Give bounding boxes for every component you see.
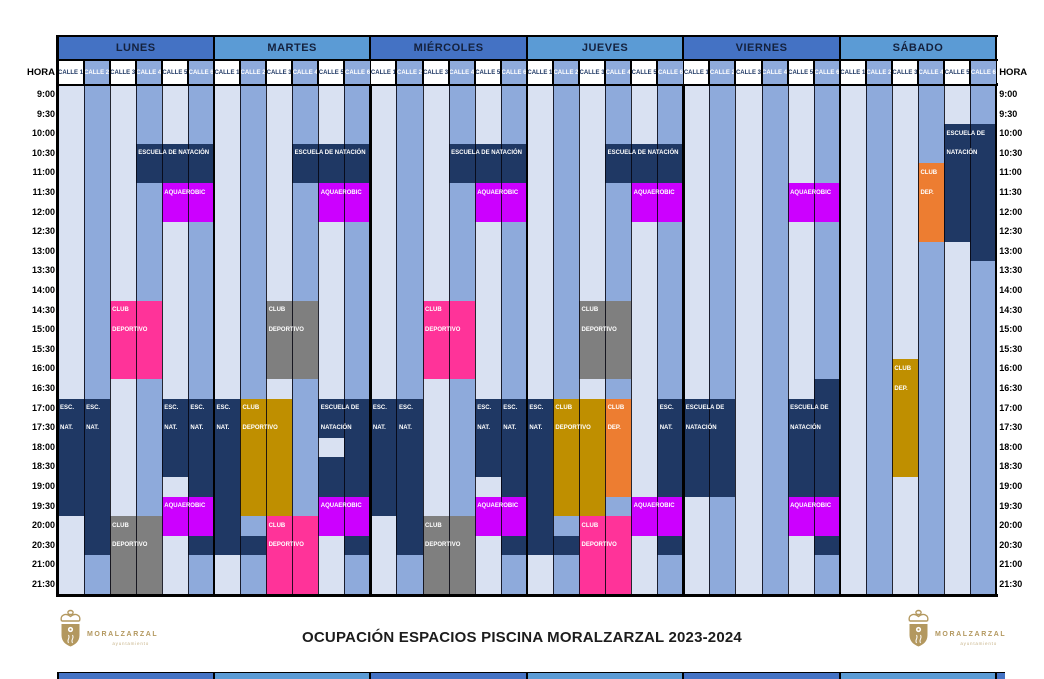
lane-header: CALLE 3 bbox=[579, 60, 605, 85]
lane-divider bbox=[136, 85, 137, 595]
time-label: 15:30 bbox=[26, 340, 55, 360]
time-label: 12:00 bbox=[999, 203, 1033, 223]
time-label: 14:30 bbox=[26, 301, 55, 321]
logo-name: MORALZARZAL bbox=[935, 631, 1006, 638]
time-label: 17:00 bbox=[26, 399, 55, 419]
lane-divider bbox=[657, 85, 658, 595]
lane-divider bbox=[162, 85, 163, 595]
lane-divider bbox=[735, 85, 736, 595]
time-label: 20:30 bbox=[26, 536, 55, 556]
time-label: 18:00 bbox=[999, 438, 1033, 458]
schedule-block-label: ESC. bbox=[164, 404, 178, 412]
schedule-block-label: ESC. bbox=[399, 404, 413, 412]
time-label: 9:00 bbox=[999, 85, 1033, 105]
lane-header: CALLE 1 bbox=[370, 60, 396, 85]
schedule-block-label: CLUB bbox=[582, 306, 599, 314]
schedule-block-label: DEPORTIVO bbox=[243, 424, 278, 432]
time-label: 19:30 bbox=[26, 497, 55, 517]
next-page-header-strip bbox=[995, 672, 1005, 679]
hora-label-left: HORA bbox=[26, 60, 55, 85]
time-label: 15:30 bbox=[999, 340, 1033, 360]
schedule-block-label: NATACIÓN bbox=[321, 424, 352, 432]
lane-header: CALLE 5 bbox=[318, 60, 344, 85]
lane-column bbox=[240, 85, 266, 595]
lane-divider bbox=[553, 85, 554, 595]
time-label: 9:30 bbox=[26, 105, 55, 125]
lane-header: CALLE 6 bbox=[188, 60, 214, 85]
time-label: 10:30 bbox=[999, 144, 1033, 164]
schedule-block-label: NAT. bbox=[190, 424, 203, 432]
lane-header: CALLE 4 bbox=[762, 60, 788, 85]
schedule-block-label: DEPORTIVO bbox=[555, 424, 590, 432]
schedule-block-label: CLUB bbox=[112, 306, 129, 314]
time-label: 21:00 bbox=[999, 555, 1033, 575]
schedule-block bbox=[788, 399, 814, 497]
lane-divider bbox=[266, 85, 267, 595]
schedule-block-label: ESCUELA DE bbox=[947, 130, 985, 138]
schedule-block-label: NATACIÓN bbox=[947, 149, 978, 157]
lane-divider bbox=[110, 85, 111, 595]
lane-header: CALLE 1 bbox=[58, 60, 84, 85]
lane-column bbox=[370, 85, 396, 595]
lane-header: CALLE 2 bbox=[240, 60, 266, 85]
lane-divider bbox=[318, 85, 319, 595]
schedule-block-label: AQUAEROBIC bbox=[164, 189, 205, 197]
time-label: 13:00 bbox=[26, 242, 55, 262]
lane-header: CALLE 5 bbox=[944, 60, 970, 85]
lane-divider bbox=[84, 85, 85, 595]
lane-divider bbox=[501, 85, 502, 595]
lane-divider bbox=[762, 85, 763, 595]
schedule-block-label: DEPORTIVO bbox=[112, 541, 147, 549]
schedule-block-label: AQUAEROBIC bbox=[477, 502, 518, 510]
schedule-block-label: CLUB bbox=[112, 522, 129, 530]
lane-column bbox=[866, 85, 892, 595]
time-label: 13:00 bbox=[999, 242, 1033, 262]
lane-header: CALLE 5 bbox=[162, 60, 188, 85]
day-boundary bbox=[839, 36, 842, 595]
lane-header: CALLE 4 bbox=[292, 60, 318, 85]
schedule-block-label: ESC. bbox=[216, 404, 230, 412]
schedule-block-label: CLUB bbox=[425, 522, 442, 530]
lane-header: CALLE 3 bbox=[892, 60, 918, 85]
lane-column bbox=[840, 85, 866, 595]
schedule-block bbox=[188, 399, 214, 497]
lane-header: CALLE 6 bbox=[970, 60, 996, 85]
lane-divider bbox=[292, 85, 293, 595]
schedule-block-label: AQUAEROBIC bbox=[790, 189, 831, 197]
lane-header: CALLE 6 bbox=[657, 60, 683, 85]
lane-divider bbox=[423, 85, 424, 595]
logo-name: MORALZARZAL bbox=[87, 631, 158, 638]
schedule-block bbox=[501, 399, 527, 497]
next-page-header-strip bbox=[682, 672, 838, 679]
schedule-block bbox=[657, 536, 683, 556]
schedule-block-label: ESCUELA DE bbox=[686, 404, 724, 412]
lane-header: CALLE 2 bbox=[553, 60, 579, 85]
time-label: 16:30 bbox=[999, 379, 1033, 399]
lane-header: CALLE 4 bbox=[136, 60, 162, 85]
lane-divider bbox=[866, 85, 867, 595]
lane-divider bbox=[240, 85, 241, 595]
lane-column bbox=[709, 85, 735, 595]
schedule-block bbox=[370, 399, 396, 517]
time-label: 19:00 bbox=[999, 477, 1033, 497]
time-label: 17:30 bbox=[26, 418, 55, 438]
schedule-block-label: NAT. bbox=[660, 424, 673, 432]
schedule-block-label: NAT. bbox=[373, 424, 386, 432]
day-boundary bbox=[56, 36, 59, 595]
time-label: 20:00 bbox=[999, 516, 1033, 536]
time-label: 15:00 bbox=[26, 320, 55, 340]
schedule-block-label: ESC. bbox=[477, 404, 491, 412]
schedule-block-label: CLUB bbox=[269, 522, 286, 530]
time-label: 21:30 bbox=[999, 575, 1033, 595]
lane-divider bbox=[344, 85, 345, 595]
time-label: 11:00 bbox=[26, 163, 55, 183]
schedule-block bbox=[814, 379, 840, 497]
logo-subtitle: ayuntamiento bbox=[87, 641, 149, 646]
lane-divider bbox=[709, 85, 710, 595]
crown-shield-icon bbox=[905, 609, 932, 651]
time-label: 10:00 bbox=[26, 124, 55, 144]
lane-header: CALLE 1 bbox=[840, 60, 866, 85]
lane-column bbox=[918, 85, 944, 595]
lane-divider bbox=[605, 85, 606, 595]
schedule-block-label: ESCUELA DE NATACIÓN bbox=[451, 149, 522, 157]
lane-header: CALLE 2 bbox=[709, 60, 735, 85]
schedule-block-label: ESCUELA DE NATACIÓN bbox=[138, 149, 209, 157]
schedule-block-label: NAT. bbox=[399, 424, 412, 432]
lane-column bbox=[683, 85, 709, 595]
day-boundary bbox=[526, 36, 529, 595]
lane-header: CALLE 3 bbox=[266, 60, 292, 85]
day-header: VIERNES bbox=[683, 36, 839, 60]
schedule-block bbox=[344, 399, 370, 497]
lane-header: CALLE 4 bbox=[918, 60, 944, 85]
lane-divider bbox=[918, 85, 919, 595]
schedule-block-label: ESC. bbox=[60, 404, 74, 412]
schedule-block-label: ESCUELA DE NATACIÓN bbox=[295, 149, 366, 157]
logo-subtitle: ayuntamiento bbox=[935, 641, 997, 646]
day-boundary bbox=[369, 36, 372, 595]
time-label: 17:30 bbox=[999, 418, 1033, 438]
schedule-block-label: CLUB bbox=[894, 365, 911, 373]
next-page-header-strip bbox=[526, 672, 682, 679]
lane-header: CALLE 2 bbox=[84, 60, 110, 85]
lane-header: CALLE 6 bbox=[344, 60, 370, 85]
schedule-block-label: CLUB bbox=[425, 306, 442, 314]
schedule-block-label: CLUB bbox=[243, 404, 260, 412]
schedule-block-label: AQUAEROBIC bbox=[790, 502, 831, 510]
schedule-block bbox=[188, 536, 214, 556]
schedule-block-label: CLUB bbox=[608, 404, 625, 412]
time-label: 14:00 bbox=[999, 281, 1033, 301]
lane-divider bbox=[814, 85, 815, 595]
time-label: 21:00 bbox=[26, 555, 55, 575]
schedule-block bbox=[58, 399, 84, 517]
time-label: 14:00 bbox=[26, 281, 55, 301]
schedule-block bbox=[970, 124, 996, 261]
time-label: 12:30 bbox=[26, 222, 55, 242]
lane-header: CALLE 1 bbox=[214, 60, 240, 85]
schedule-block bbox=[605, 399, 631, 497]
schedule-block-label: DEPORTIVO bbox=[269, 541, 304, 549]
schedule-block-label: AQUAEROBIC bbox=[164, 502, 205, 510]
day-header: SÁBADO bbox=[840, 36, 996, 60]
schedule-block bbox=[553, 536, 579, 556]
time-label: 12:30 bbox=[999, 222, 1033, 242]
schedule-block-label: DEPORTIVO bbox=[425, 541, 460, 549]
schedule-block-label: AQUAEROBIC bbox=[634, 189, 675, 197]
time-label: 11:30 bbox=[26, 183, 55, 203]
lane-header: CALLE 5 bbox=[631, 60, 657, 85]
time-label: 20:00 bbox=[26, 516, 55, 536]
schedule-block bbox=[892, 359, 918, 477]
lane-header: CALLE 6 bbox=[501, 60, 527, 85]
schedule-block bbox=[214, 399, 240, 556]
time-label: 11:30 bbox=[999, 183, 1033, 203]
next-page-header-strip bbox=[369, 672, 525, 679]
time-label: 10:00 bbox=[999, 124, 1033, 144]
schedule-block bbox=[527, 399, 553, 556]
time-label: 18:30 bbox=[999, 457, 1033, 477]
schedule-block-label: DEP. bbox=[608, 424, 621, 432]
time-label: 19:00 bbox=[26, 477, 55, 497]
schedule-block-label: NAT. bbox=[216, 424, 229, 432]
lane-divider bbox=[188, 85, 189, 595]
schedule-block-label: DEPORTIVO bbox=[425, 326, 460, 334]
schedule-block-label: NAT. bbox=[60, 424, 73, 432]
lane-column bbox=[762, 85, 788, 595]
schedule-block-label: CLUB bbox=[555, 404, 572, 412]
schedule-block-label: NAT. bbox=[529, 424, 542, 432]
time-label: 9:00 bbox=[26, 85, 55, 105]
lane-header: CALLE 1 bbox=[683, 60, 709, 85]
schedule-block-label: DEPORTIVO bbox=[269, 326, 304, 334]
schedule-block-label: AQUAEROBIC bbox=[321, 502, 362, 510]
time-label: 17:00 bbox=[999, 399, 1033, 419]
next-page-header-strip bbox=[213, 672, 369, 679]
schedule-block-label: ESC. bbox=[86, 404, 100, 412]
schedule-sheet: ESCUELA DE NATACIÓNAQUAEROBICCLUBDEPORTI… bbox=[0, 0, 1044, 679]
lane-divider bbox=[475, 85, 476, 595]
schedule-block-label: ESC. bbox=[503, 404, 517, 412]
time-label: 18:00 bbox=[26, 438, 55, 458]
time-label: 13:30 bbox=[26, 261, 55, 281]
schedule-block-label: CLUB bbox=[582, 522, 599, 530]
lane-divider bbox=[970, 85, 971, 595]
time-label: 14:30 bbox=[999, 301, 1033, 321]
moralzarzal-logo-right: MORALZARZAL ayuntamiento bbox=[905, 607, 1015, 661]
lane-header: CALLE 6 bbox=[814, 60, 840, 85]
schedule-block bbox=[501, 536, 527, 556]
schedule-block-label: AQUAEROBIC bbox=[477, 189, 518, 197]
day-header: MARTES bbox=[214, 36, 370, 60]
schedule-block bbox=[814, 536, 840, 556]
lane-divider bbox=[579, 85, 580, 595]
next-page-header-strip bbox=[839, 672, 995, 679]
lane-header: CALLE 3 bbox=[423, 60, 449, 85]
lane-header: CALLE 5 bbox=[788, 60, 814, 85]
schedule-block bbox=[318, 457, 344, 496]
schedule-block-label: DEPORTIVO bbox=[582, 326, 617, 334]
schedule-block-label: ESCUELA DE NATACIÓN bbox=[608, 149, 679, 157]
time-label: 11:00 bbox=[999, 163, 1033, 183]
lane-column bbox=[735, 85, 761, 595]
lane-header: CALLE 3 bbox=[735, 60, 761, 85]
lane-divider bbox=[396, 85, 397, 595]
time-label: 16:30 bbox=[26, 379, 55, 399]
schedule-block bbox=[944, 124, 970, 242]
schedule-block-label: DEPORTIVO bbox=[582, 541, 617, 549]
schedule-block bbox=[344, 536, 370, 556]
time-label: 10:30 bbox=[26, 144, 55, 164]
time-label: 15:00 bbox=[999, 320, 1033, 340]
lane-divider bbox=[788, 85, 789, 595]
schedule-block-label: DEP. bbox=[894, 385, 907, 393]
time-label: 20:30 bbox=[999, 536, 1033, 556]
time-label: 16:00 bbox=[26, 359, 55, 379]
lane-header: CALLE 5 bbox=[475, 60, 501, 85]
lane-divider bbox=[449, 85, 450, 595]
schedule-block-label: NAT. bbox=[503, 424, 516, 432]
schedule-block-label: NAT. bbox=[477, 424, 490, 432]
schedule-block-label: DEPORTIVO bbox=[112, 326, 147, 334]
lane-column bbox=[892, 85, 918, 595]
lane-column bbox=[58, 85, 84, 595]
schedule-block bbox=[84, 399, 110, 556]
schedule-block-label: ESCUELA DE bbox=[790, 404, 828, 412]
schedule-block-label: ESC. bbox=[373, 404, 387, 412]
lane-header: CALLE 3 bbox=[110, 60, 136, 85]
time-label: 18:30 bbox=[26, 457, 55, 477]
time-label: 9:30 bbox=[999, 105, 1033, 125]
schedule-block-label: DEP. bbox=[920, 189, 933, 197]
schedule-block-label: NAT. bbox=[86, 424, 99, 432]
time-label: 21:30 bbox=[26, 575, 55, 595]
lane-header: CALLE 2 bbox=[866, 60, 892, 85]
schedule-block-label: NATACIÓN bbox=[686, 424, 717, 432]
schedule-block-label: AQUAEROBIC bbox=[634, 502, 675, 510]
time-label: 12:00 bbox=[26, 203, 55, 223]
schedule-block-label: ESC. bbox=[529, 404, 543, 412]
schedule-block bbox=[657, 399, 683, 497]
day-header: LUNES bbox=[58, 36, 214, 60]
moralzarzal-logo-left: MORALZARZAL ayuntamiento bbox=[57, 607, 167, 661]
schedule-block-label: CLUB bbox=[269, 306, 286, 314]
schedule-block-label: ESCUELA DE bbox=[321, 404, 359, 412]
lane-header: CALLE 4 bbox=[449, 60, 475, 85]
lane-header: CALLE 4 bbox=[605, 60, 631, 85]
schedule-block-label: ESC. bbox=[190, 404, 204, 412]
time-label: 16:00 bbox=[999, 359, 1033, 379]
time-label: 13:30 bbox=[999, 261, 1033, 281]
schedule-block-label: AQUAEROBIC bbox=[321, 189, 362, 197]
day-header: JUEVES bbox=[527, 36, 683, 60]
lane-divider bbox=[944, 85, 945, 595]
lane-column bbox=[553, 85, 579, 595]
lane-header: CALLE 2 bbox=[396, 60, 422, 85]
schedule-block-label: CLUB bbox=[920, 169, 937, 177]
day-header: MIÉRCOLES bbox=[370, 36, 526, 60]
time-label: 19:30 bbox=[999, 497, 1033, 517]
crown-shield-icon bbox=[57, 609, 84, 651]
schedule-block bbox=[240, 536, 266, 556]
grid-rule bbox=[56, 594, 998, 597]
day-boundary bbox=[682, 36, 685, 595]
lane-divider bbox=[892, 85, 893, 595]
day-boundary bbox=[213, 36, 216, 595]
next-page-header-strip bbox=[57, 672, 213, 679]
lane-header: CALLE 1 bbox=[527, 60, 553, 85]
hora-label-right: HORA bbox=[999, 60, 1033, 85]
lane-divider bbox=[631, 85, 632, 595]
schedule-block-label: NATACIÓN bbox=[790, 424, 821, 432]
schedule-block-label: ESC. bbox=[660, 404, 674, 412]
day-boundary bbox=[995, 36, 998, 595]
schedule-block bbox=[396, 399, 422, 556]
schedule-block-label: NAT. bbox=[164, 424, 177, 432]
